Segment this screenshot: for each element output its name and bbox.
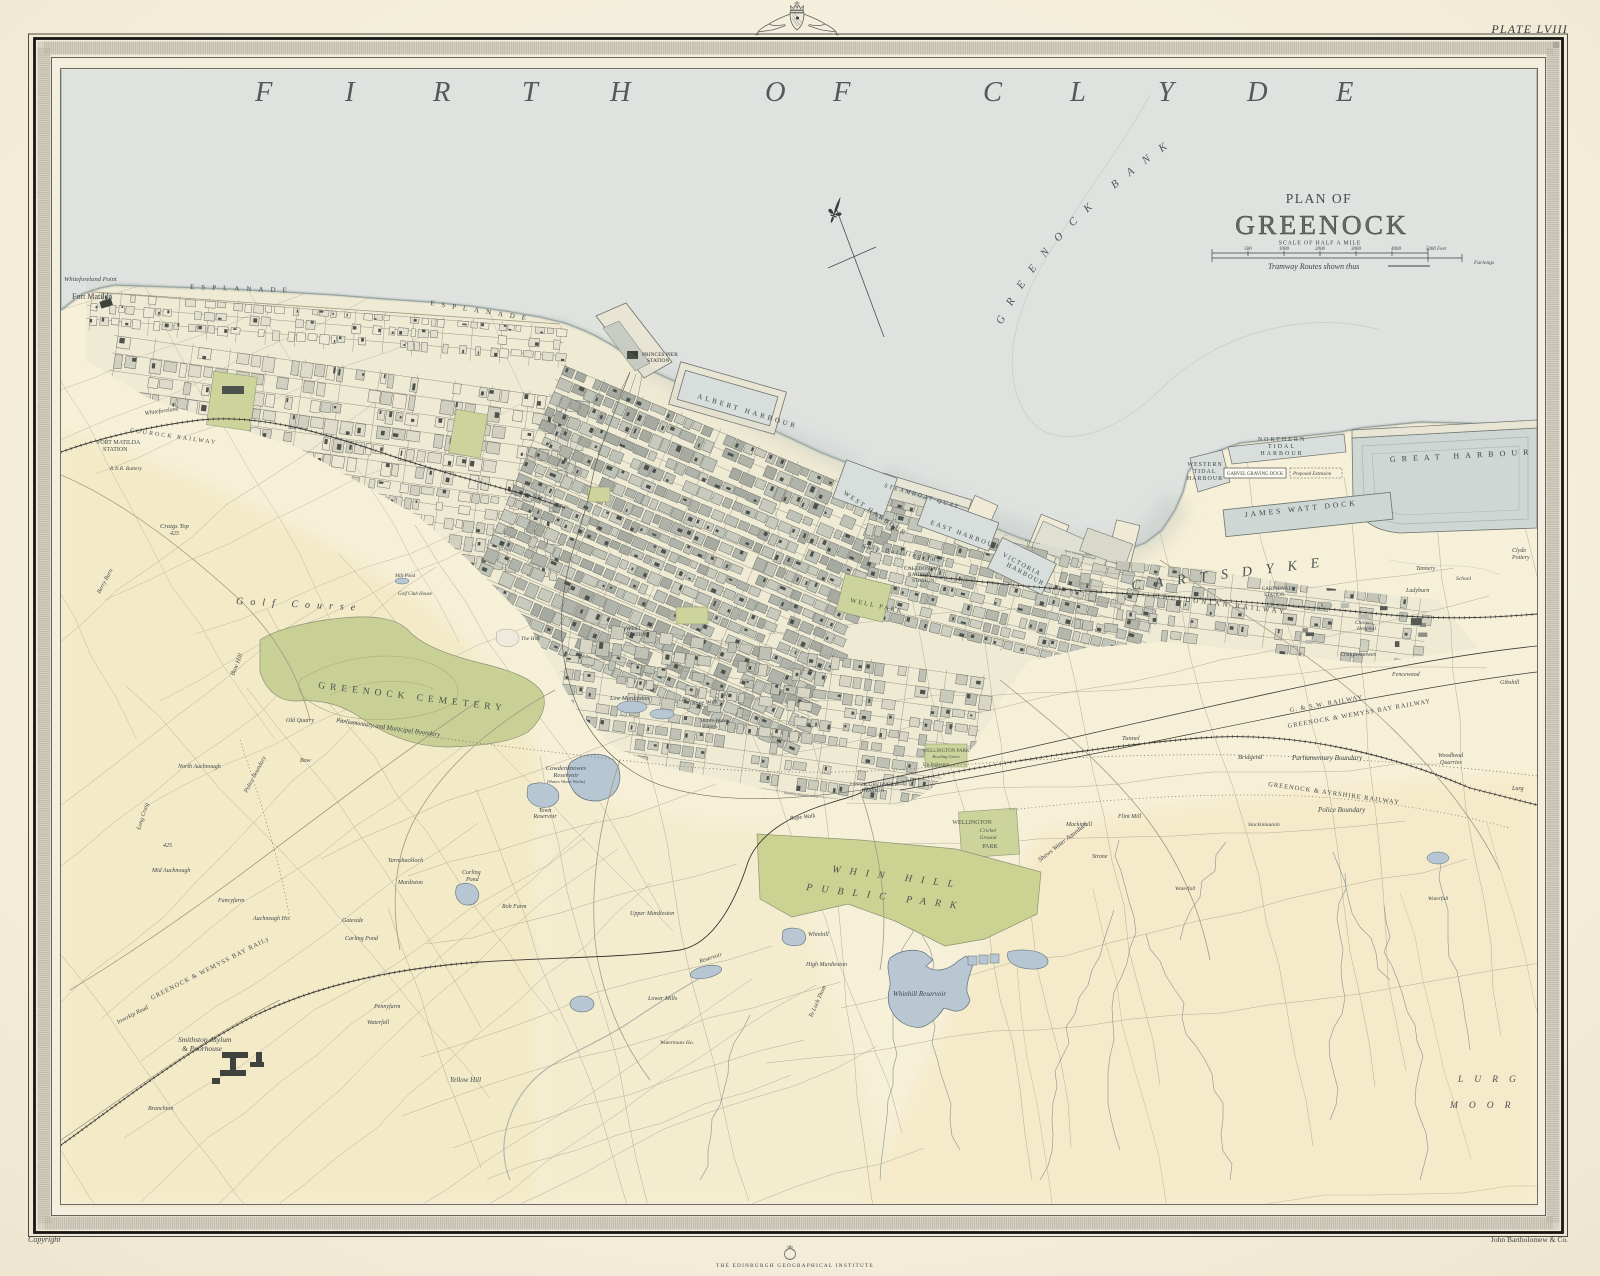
svg-text:THE EDINBURGH GEOGRAPHICAL INS: THE EDINBURGH GEOGRAPHICAL INSTITUTE [716,1263,874,1269]
svg-text:PARK: PARK [982,844,998,850]
svg-text:PLATE LVIII: PLATE LVIII [1490,22,1568,36]
svg-text:1000: 1000 [1279,247,1290,252]
svg-text:STATION: STATION [1264,593,1285,598]
svg-text:Whinhill Reservoir: Whinhill Reservoir [893,990,946,998]
svg-text:LURG: LURG [1457,1075,1527,1085]
svg-text:Mardiston: Mardiston [397,880,423,886]
svg-text:R: R [432,77,450,108]
svg-text:Ground: Ground [980,835,997,841]
svg-text:Low Murdieston: Low Murdieston [609,696,649,702]
svg-text:Whiteforeland Point: Whiteforeland Point [64,276,117,283]
svg-text:CARTSDYKE: CARTSDYKE [1262,587,1292,592]
svg-text:Craigieknowes: Craigieknowes [1340,652,1377,658]
svg-text:Fort Matilda: Fort Matilda [72,292,113,301]
svg-text:John Bartholomew & Co.: John Bartholomew & Co. [1491,1235,1568,1244]
svg-text:Fancyfarm: Fancyfarm [217,897,245,904]
svg-text:F: F [254,77,273,108]
svg-text:T: T [522,77,540,108]
svg-text:Bow: Bow [300,758,311,764]
svg-text:MOOR: MOOR [1449,1101,1521,1111]
svg-text:TIDAL: TIDAL [1194,469,1217,475]
svg-text:Tramway Routes shown thus: Tramway Routes shown thus [1268,262,1359,271]
svg-text:Reservoir: Reservoir [532,814,557,820]
svg-text:Up.Ingleston: Up.Ingleston [923,763,949,768]
svg-text:North Auchnough: North Auchnough [177,764,221,770]
svg-text:Bridgend: Bridgend [1238,754,1263,761]
svg-text:PLAN OF: PLAN OF [1286,191,1352,206]
svg-text:Pottery: Pottery [1511,555,1530,561]
svg-text:STATION: STATION [912,578,935,584]
svg-text:Quarries: Quarries [1440,760,1462,766]
svg-text:STATION: STATION [647,358,670,364]
svg-text:O: O [765,77,786,108]
svg-text:STATION: STATION [103,447,128,453]
svg-text:Waterfall: Waterfall [1175,885,1196,892]
svg-text:Smithston Asylum: Smithston Asylum [178,1035,232,1044]
svg-text:Tunnel: Tunnel [1122,735,1140,742]
svg-text:Police Boundary: Police Boundary [1317,806,1366,814]
svg-text:Furlongs: Furlongs [1473,260,1494,266]
svg-text:SCALE OF HALF A MILE: SCALE OF HALF A MILE [1279,241,1361,247]
svg-text:Yellow Hill: Yellow Hill [450,1076,481,1084]
svg-text:(Shaws Water Works): (Shaws Water Works) [547,779,586,784]
svg-text:HARBOUR: HARBOUR [1187,476,1223,482]
svg-text:The Hill: The Hill [521,636,540,642]
svg-text:I: I [344,77,356,108]
svg-text:Whinhill: Whinhill [808,932,829,938]
svg-text:425: 425 [170,530,179,537]
svg-text:Lurg: Lurg [1511,786,1523,792]
svg-text:Strone: Strone [1092,854,1108,860]
svg-text:500: 500 [1244,247,1252,252]
svg-text:Gateside: Gateside [342,918,364,924]
svg-text:L: L [1069,77,1086,108]
svg-text:Auchneagh Ho.: Auchneagh Ho. [252,916,290,922]
svg-text:Golf Club House: Golf Club House [398,592,433,597]
svg-text:Waterfall: Waterfall [1428,895,1449,902]
svg-text:Old Quarry: Old Quarry [286,718,315,724]
svg-text:Copyright: Copyright [28,1235,61,1244]
svg-text:D: D [1246,77,1268,108]
svg-text:WELLINGTON: WELLINGTON [952,820,992,826]
svg-text:Cricket: Cricket [980,828,997,834]
svg-text:HARBOUR: HARBOUR [1260,451,1303,457]
svg-text:School: School [1456,576,1471,582]
svg-text:Upper Mardieston: Upper Mardieston [630,911,674,917]
svg-text:WESTERN: WESTERN [1187,462,1222,468]
svg-text:Bowling Green: Bowling Green [932,754,960,759]
svg-text:STATION: STATION [862,788,885,794]
svg-text:Clyde: Clyde [1512,548,1526,554]
svg-text:Carling Pond: Carling Pond [345,936,379,942]
svg-text:GREENOCK: GREENOCK [1235,209,1409,240]
svg-text:F: F [832,77,851,108]
svg-text:Mackinhill: Mackinhill [1065,822,1092,828]
svg-text:Filters: Filters [702,724,718,730]
svg-text:3000: 3000 [1351,247,1362,252]
svg-text:Proposed Extension: Proposed Extension [1292,472,1332,477]
svg-text:4000: 4000 [1391,247,1402,252]
svg-text:Rob Farm: Rob Farm [501,904,527,910]
svg-text:E: E [1335,77,1353,108]
svg-text:Craigs Top: Craigs Top [160,523,190,530]
svg-text:NORTHERN: NORTHERN [1258,437,1306,443]
svg-text:Fencewood: Fencewood [1391,672,1421,678]
svg-text:Tannery: Tannery [1416,566,1436,572]
svg-text:Lower Mills: Lower Mills [647,996,678,1002]
svg-text:425: 425 [163,842,172,849]
svg-text:H: H [609,77,632,108]
svg-text:Ladyburn: Ladyburn [1405,588,1429,594]
svg-text:Branchton: Branchton [148,1106,173,1112]
svg-text:FORT MATILDA: FORT MATILDA [97,440,141,446]
svg-text:C: C [983,77,1003,108]
svg-text:2000: 2000 [1315,247,1326,252]
svg-text:STATION: STATION [626,632,649,638]
svg-text:Curling: Curling [462,870,481,876]
svg-text:5000 Feet: 5000 Feet [1426,247,1447,252]
svg-text:Watermans Ho.: Watermans Ho. [660,1040,694,1046]
svg-text:High Murdieston: High Murdieston [805,962,847,968]
svg-text:Mid Auchnough: Mid Auchnough [151,868,190,874]
svg-text:GARVEL GRAVING DOCK: GARVEL GRAVING DOCK [1227,472,1284,477]
svg-text:Parliamentary Boundary: Parliamentary Boundary [1291,754,1363,762]
svg-text:R.N.R. Battery: R.N.R. Battery [109,466,143,472]
svg-text:TIDAL: TIDAL [1268,444,1296,450]
svg-text:Yarnshackloch: Yarnshackloch [388,858,423,864]
svg-text:Flint Mill: Flint Mill [1117,814,1141,820]
svg-text:Waterfall: Waterfall [367,1019,389,1026]
svg-text:Gibshill: Gibshill [1500,680,1520,686]
svg-text:Woodhead: Woodhead [1438,753,1464,759]
svg-text:Pennyfarm: Pennyfarm [373,1003,401,1010]
svg-text:Stackinlautain: Stackinlautain [1248,822,1280,828]
svg-text:Hospital: Hospital [1356,626,1376,632]
svg-text:Reservoir: Reservoir [552,772,579,779]
svg-text:Cowdenknowes: Cowdenknowes [546,765,587,772]
svg-text:& Poorhouse: & Poorhouse [182,1044,223,1053]
svg-text:Mill Pond: Mill Pond [394,574,416,579]
svg-text:Pond: Pond [465,877,480,883]
